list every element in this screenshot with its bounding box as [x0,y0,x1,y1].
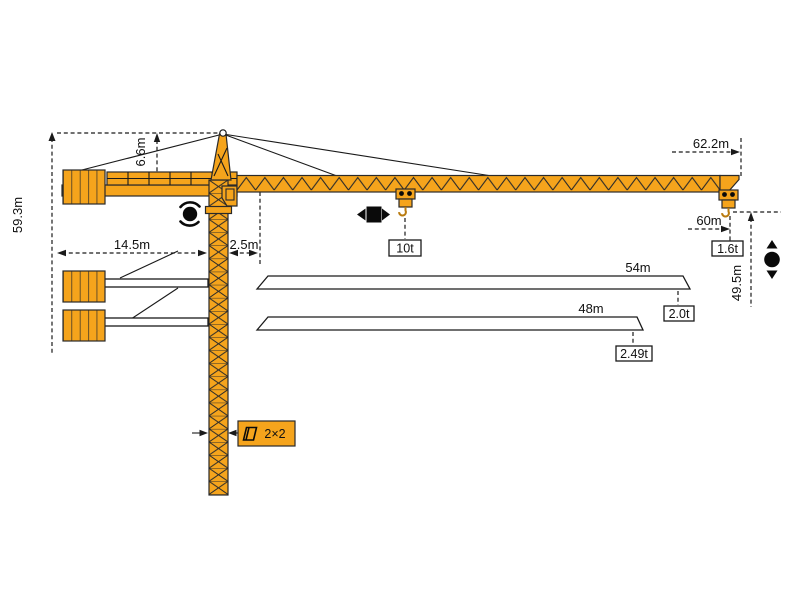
cap-60-label: 1.6t [717,242,738,256]
trolley-travel-square [367,207,382,223]
radius-arrow-right [721,226,730,232]
trolley-travel-left-arrow [357,209,366,221]
jib-profile-54 [257,276,690,289]
hoist-icon [764,240,780,279]
jib-length-label: 62.2m [693,136,729,151]
trolley-wheel [722,192,727,197]
cap-54-label: 2.0t [669,307,690,321]
jib-lattice [237,176,720,193]
jib-48-label: 48m [578,301,603,316]
hoist-dot [764,252,780,268]
clearance-label: 2.5m [230,237,259,252]
hook-height-label: 49.5m [729,265,744,301]
crane-dimension-diagram: 2×2 59.3m 6.6m 14.5m 2.5m 62.2m 60m 49.5… [0,0,800,600]
tower-head [211,134,231,180]
trolley-mid [396,189,415,215]
hoist-down-arrow [767,271,778,280]
tower-head-pin [220,130,226,136]
capacity-boxes: 10t 1.6t 2.0t 2.49t [389,240,743,361]
jib-profile-48 [257,317,643,330]
total-height-arrow-up [49,132,56,141]
trolley-wheel [399,191,404,196]
counterweight-54-slabs [63,271,105,302]
slewing-dot [183,207,197,221]
counter-jib-label: 14.5m [114,237,150,252]
mast-section-label: 2×2 [264,427,285,441]
cap-max-label: 10t [396,242,414,256]
head-height-arrow-up [154,133,160,142]
counter-jib-arrow-left [57,250,66,256]
jib-tie-outer [223,134,492,176]
counterweight-main-slabs [63,170,105,204]
head-height-label: 6.6m [133,138,148,167]
hook-block [399,199,412,207]
jib-length-arrow-right [731,149,740,155]
variant-54-callout-line [120,251,178,278]
trolley-frame [396,189,415,199]
trolley-travel-right-arrow [382,209,390,221]
counterweight-48-slabs [63,310,105,341]
trolley-travel-icon [357,207,390,223]
jib-54-label: 54m [625,260,650,275]
trolley-wheel [730,192,735,197]
slewing-arc-top [181,202,200,207]
mast-arrow-left [200,430,209,436]
hook-icon [722,208,729,216]
total-height-label: 59.3m [10,197,25,233]
hoist-up-arrow [767,240,778,249]
trolley-wheel [407,191,412,196]
variant-counter-jibs [63,271,208,341]
hook-icon [399,207,406,215]
hook-height-arrow-up [748,212,754,221]
slewing-arc-bottom [181,222,199,226]
jib [237,176,739,193]
slewing-collar [206,207,232,214]
mast-lattice [209,180,228,495]
counter-jib-arrow-right [198,250,207,256]
diagram-canvas: 2×2 59.3m 6.6m 14.5m 2.5m 62.2m 60m 49.5… [0,0,800,600]
hook-block [722,200,735,208]
mast-arrow-right [228,430,237,436]
mast-section-callout: 2×2 [192,421,295,446]
trolley-frame [719,190,738,200]
cap-48-label: 2.49t [620,347,648,361]
jib-profiles [257,276,690,330]
slewing-icon [181,202,200,225]
counter-jib-tie [78,134,223,171]
jib-tie-inner [223,134,337,176]
radius-label: 60m [696,213,721,228]
